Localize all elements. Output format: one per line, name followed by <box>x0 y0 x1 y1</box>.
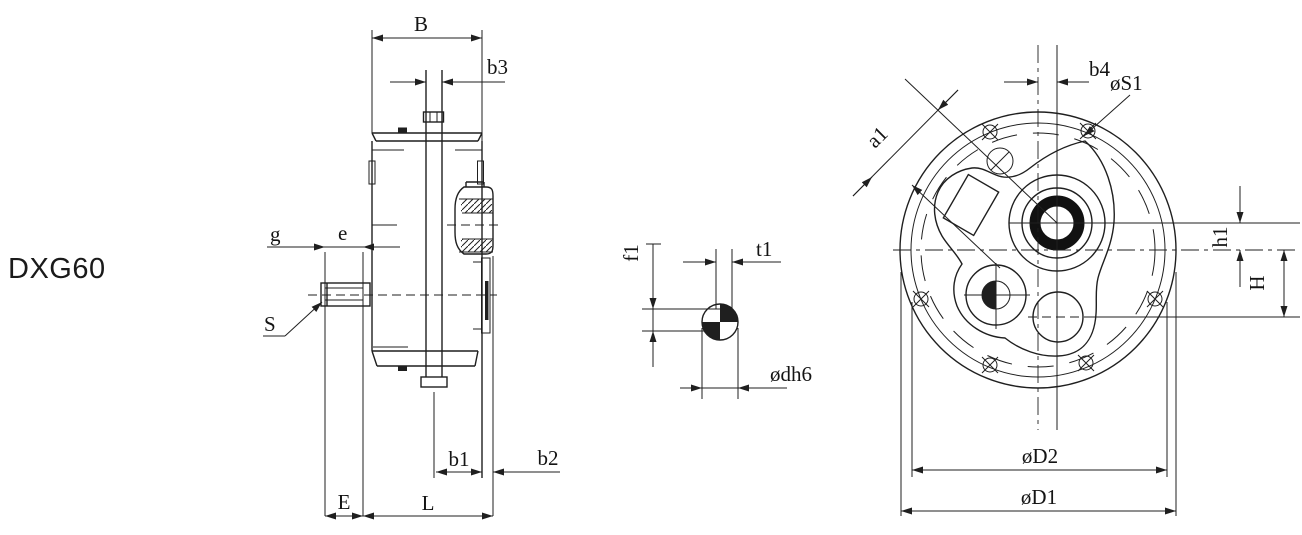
drain-plug <box>398 366 407 371</box>
side-view: B b3 g e S b1 b2 E <box>263 12 560 516</box>
dim-label-S: S <box>264 312 276 336</box>
input-shaft-end <box>964 263 1030 329</box>
dim-label-b3: b3 <box>487 55 508 79</box>
torque-arm-bushing <box>447 182 501 254</box>
dim-label-b1: b1 <box>449 447 470 471</box>
dim-label-e: e <box>338 221 347 245</box>
front-view: b4 øS1 a1 h1 H øD2 øD1 <box>853 45 1300 516</box>
dim-label-b2: b2 <box>538 446 559 470</box>
breather-plug <box>398 128 407 134</box>
front-view-dimensions: b4 øS1 a1 h1 H øD2 øD1 <box>853 57 1284 516</box>
bushing-hatch-top <box>461 199 492 213</box>
dim-label-s1-bolt-diameter: øS1 <box>1110 71 1143 95</box>
dim-label-B: B <box>414 12 428 36</box>
shaft-section-detail: f1 t1 ødh6 <box>619 237 812 399</box>
technical-drawing-page: B b3 g e S b1 b2 E <box>0 0 1302 535</box>
dim-label-h1: h1 <box>1208 227 1232 248</box>
side-view-dimensions: B b3 g e S b1 b2 E <box>263 12 560 516</box>
bolt-hole <box>982 124 998 140</box>
model-label: DXG60 <box>8 253 106 285</box>
nameplate <box>943 175 998 236</box>
bolt-hole <box>1147 291 1163 307</box>
front-view-centerlines <box>893 45 1300 430</box>
dim-label-shaft-diameter: ødh6 <box>770 362 812 386</box>
dim-label-L: L <box>422 491 435 515</box>
output-hub-stem <box>421 70 447 387</box>
dim-label-f1: f1 <box>619 244 643 262</box>
sight-glass <box>485 281 489 320</box>
dim-label-d1: øD1 <box>1021 485 1057 509</box>
dim-label-d2: øD2 <box>1022 444 1058 468</box>
gear-reducer-drawing: B b3 g e S b1 b2 E <box>0 0 1302 535</box>
hub-diagonal-centerline <box>905 79 1057 223</box>
dim-label-a1: a1 <box>862 122 893 153</box>
dim-label-E: E <box>338 490 351 514</box>
keyway-width-lines <box>716 249 732 309</box>
dim-label-H: H <box>1245 275 1269 290</box>
input-shaft <box>308 283 497 306</box>
cover-outline <box>935 141 1115 356</box>
bushing-hatch-bottom <box>461 239 492 252</box>
section-quadrant-tr <box>720 304 738 322</box>
dim-label-g: g <box>270 222 281 246</box>
dim-label-b4: b4 <box>1089 57 1111 81</box>
dim-label-t1: t1 <box>756 237 772 261</box>
bolt-hole <box>913 291 929 307</box>
bolt-hole <box>1078 355 1094 371</box>
